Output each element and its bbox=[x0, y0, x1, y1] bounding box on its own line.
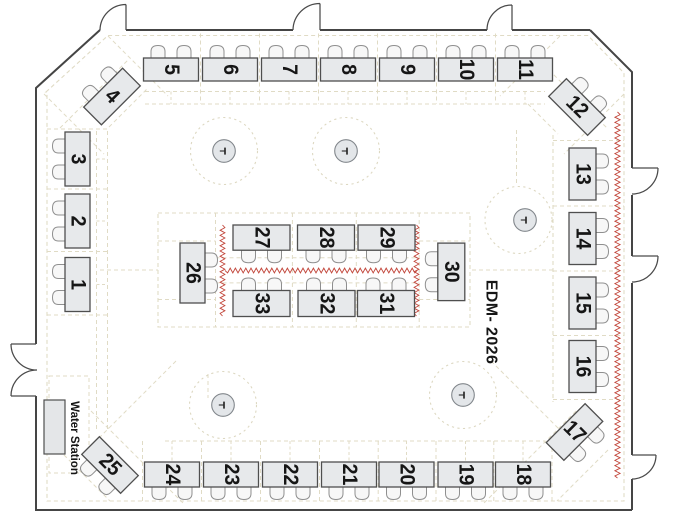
svg-text:23: 23 bbox=[220, 464, 243, 486]
svg-text:19: 19 bbox=[454, 464, 477, 486]
svg-text:26: 26 bbox=[181, 262, 204, 284]
svg-text:21: 21 bbox=[338, 464, 361, 486]
svg-text:7: 7 bbox=[278, 64, 301, 75]
svg-text:Water Station: Water Station bbox=[68, 401, 80, 475]
svg-text:11: 11 bbox=[514, 59, 537, 80]
svg-text:29: 29 bbox=[375, 227, 398, 249]
svg-text:16: 16 bbox=[571, 356, 594, 378]
svg-text:6: 6 bbox=[219, 64, 242, 75]
svg-text:18: 18 bbox=[512, 464, 535, 486]
svg-text:1: 1 bbox=[66, 279, 89, 290]
svg-text:32: 32 bbox=[315, 293, 338, 315]
svg-text:10: 10 bbox=[455, 59, 478, 81]
svg-text:2: 2 bbox=[66, 216, 89, 227]
svg-text:24: 24 bbox=[161, 464, 184, 486]
svg-text:30: 30 bbox=[440, 261, 463, 283]
svg-text:9: 9 bbox=[396, 64, 419, 75]
svg-text:14: 14 bbox=[571, 228, 594, 250]
svg-text:15: 15 bbox=[571, 292, 594, 314]
svg-text:20: 20 bbox=[395, 464, 418, 486]
svg-text:13: 13 bbox=[571, 163, 594, 185]
svg-text:EDM- 2026: EDM- 2026 bbox=[483, 280, 500, 365]
svg-text:5: 5 bbox=[160, 64, 183, 75]
svg-text:31: 31 bbox=[375, 293, 398, 315]
svg-text:28: 28 bbox=[315, 227, 338, 249]
svg-text:3: 3 bbox=[66, 154, 89, 165]
svg-text:27: 27 bbox=[250, 227, 273, 249]
svg-text:8: 8 bbox=[337, 64, 360, 75]
svg-text:22: 22 bbox=[279, 464, 302, 486]
svg-text:33: 33 bbox=[250, 293, 273, 315]
